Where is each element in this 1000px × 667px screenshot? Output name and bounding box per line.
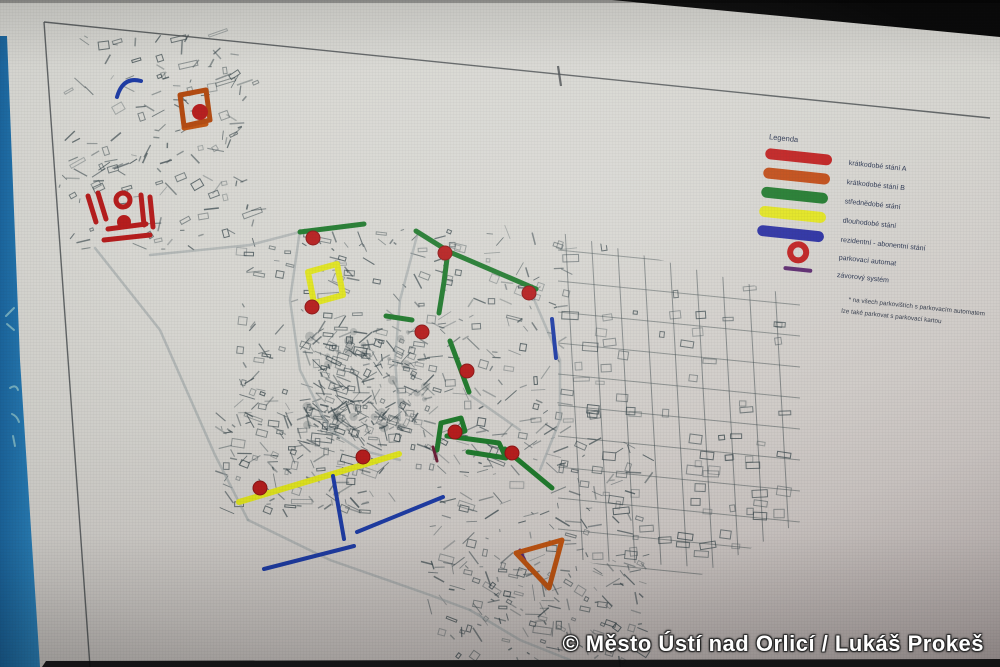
route-segment-red (88, 196, 96, 222)
monitor-bezel-top-right (612, 0, 1000, 37)
zone-outline-yellow (308, 264, 343, 303)
parking-automat-marker (356, 450, 370, 464)
legend-item-label: rezidentní - abonentní stání (840, 237, 926, 253)
parking-area-blob (192, 104, 208, 120)
legend-title: Legenda (769, 132, 800, 144)
parking-automat-marker (448, 425, 462, 439)
legend-swatch-ring (789, 244, 807, 262)
route-segment-red (98, 193, 106, 219)
base-map-line-art (59, 29, 654, 667)
monitor-bezel-bottom (42, 659, 1000, 667)
route-segment-blue (333, 476, 344, 539)
desktop-blue-strip (0, 36, 40, 667)
housing-grid-blocks (558, 228, 802, 584)
parking-automat-marker (522, 286, 536, 300)
photo-of-projected-screen: Legenda krátkodobé stání Akrátkodobé stá… (0, 0, 1000, 667)
frame-left-edge (44, 22, 90, 667)
parking-automat-marker (306, 231, 320, 245)
legend-item-label: krátkodobé stání B (846, 179, 905, 192)
legend-item-label: parkovací automat (838, 255, 896, 268)
legend-item-label: dlouhodobé stání (842, 218, 896, 231)
parking-automat-marker (505, 446, 519, 460)
route-segment-red (150, 197, 153, 227)
copyright-watermark: © Město Ústí nad Orlicí / Lukáš Prokeš (562, 631, 984, 657)
legend-swatch-bar (765, 148, 833, 166)
screen-top-edge-shadow (0, 0, 1000, 3)
route-segment-red (104, 235, 150, 240)
parking-area-blob (117, 215, 131, 229)
legend-item-label: střednědobé stání (844, 198, 901, 211)
legend-swatch-bar (761, 186, 829, 204)
parking-automat-marker (415, 325, 429, 339)
legend-rows: krátkodobé stání Akrátkodobé stání Bstře… (753, 148, 934, 288)
route-segment-blue (552, 319, 556, 358)
legend-item-label: závorový systém (837, 272, 890, 284)
legend-item-label: krátkodobé stání A (848, 160, 907, 173)
parking-automat-marker (305, 300, 319, 314)
legend: Legenda krátkodobé stání Akrátkodobé stá… (749, 132, 1000, 330)
parking-automat-marker (253, 481, 267, 495)
route-segment-green (452, 253, 536, 289)
route-segment-green (300, 224, 364, 232)
legend-swatch-bar (763, 167, 831, 185)
frame-top-edge (44, 22, 990, 118)
zone-outline-orange (516, 540, 562, 588)
legend-swatch-thin-bar (783, 266, 812, 273)
parking-zone-routes (88, 124, 556, 569)
parking-map-canvas: Legenda krátkodobé stání Akrátkodobé stá… (0, 0, 1000, 667)
legend-swatch-bar (757, 225, 825, 243)
route-segment-red (141, 195, 144, 225)
parking-automat-marker (460, 364, 474, 378)
frame-tick-mark (558, 66, 561, 86)
legend-swatch-bar (759, 205, 827, 223)
parking-automat-marker (438, 246, 452, 260)
parking-automat-ring (116, 193, 130, 207)
